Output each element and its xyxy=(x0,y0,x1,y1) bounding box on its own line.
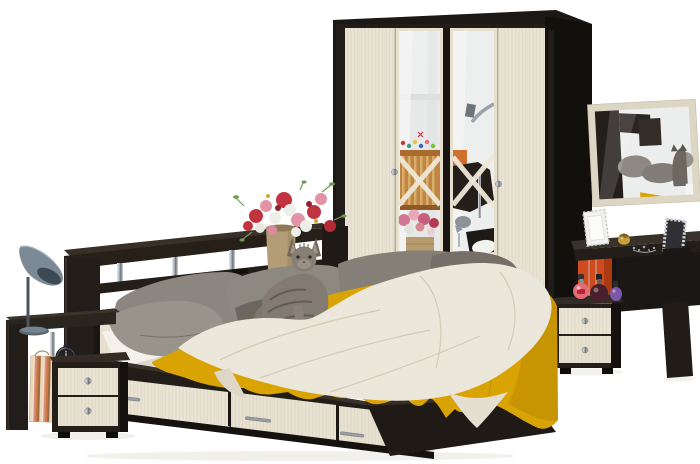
cat-muzzle xyxy=(297,259,311,269)
drawer-knob-icon xyxy=(582,318,588,324)
bed xyxy=(98,238,558,459)
cat-eye xyxy=(308,255,311,258)
vanity-pedestal xyxy=(551,294,623,374)
upright-edge xyxy=(65,258,67,358)
panel-edge xyxy=(7,324,9,430)
drawer-gap xyxy=(228,392,231,427)
lamp-base-highlight xyxy=(21,327,47,333)
chrome-support-post xyxy=(50,332,55,360)
nightstand-foot xyxy=(106,432,118,438)
nightstand-foot xyxy=(58,432,70,438)
bag-handle xyxy=(35,351,49,356)
gift-bag xyxy=(29,351,55,423)
nightstand-side xyxy=(120,362,128,432)
cat-eye xyxy=(296,255,299,258)
wardrobe-handle-icon xyxy=(392,169,398,175)
pedestal-foot xyxy=(602,368,613,374)
pedestal-foot xyxy=(560,368,571,374)
pedestal-side xyxy=(611,304,621,368)
vanity-wall-mirror xyxy=(587,99,700,207)
photo-frame-silver xyxy=(663,219,685,252)
lamp-stem xyxy=(27,277,30,328)
product-photo-bedroom-set xyxy=(0,0,700,464)
photo-frame-white xyxy=(583,210,609,246)
table-right-leg xyxy=(662,301,693,378)
trinket-box xyxy=(618,233,630,244)
drawer-gap xyxy=(336,405,339,441)
wardrobe-handle-icon xyxy=(496,181,502,187)
drawer-knob-icon xyxy=(85,378,91,384)
left-nightstand xyxy=(50,352,130,438)
drawer-knob-icon xyxy=(85,408,91,414)
drawer-knob-icon xyxy=(582,347,588,353)
table-left-panel xyxy=(6,324,28,430)
